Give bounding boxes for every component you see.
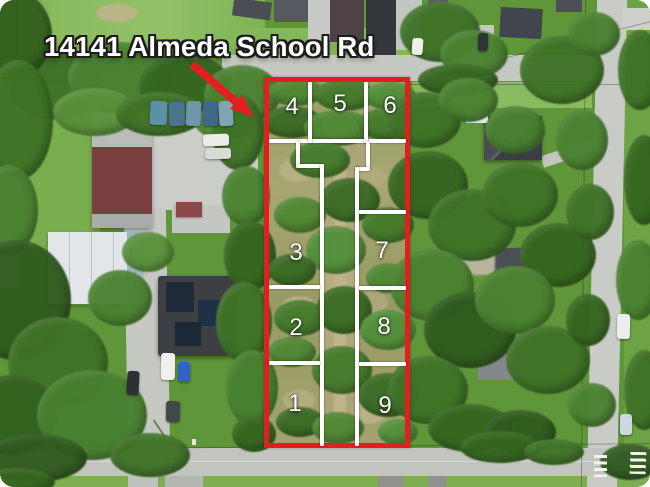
car xyxy=(617,314,630,339)
mailbox xyxy=(192,439,196,445)
tree-canopy xyxy=(438,78,498,122)
solar-panel xyxy=(166,282,194,312)
crosswalk-stripes xyxy=(630,452,647,475)
tree-canopy xyxy=(122,232,174,272)
car xyxy=(169,102,186,127)
car xyxy=(178,362,190,382)
lot-line xyxy=(366,141,370,170)
tree-canopy xyxy=(568,12,620,56)
driveway-apron xyxy=(165,476,203,487)
lot-line xyxy=(320,164,324,446)
car xyxy=(126,371,139,396)
driveway-apron xyxy=(428,476,446,487)
lot-line xyxy=(269,361,320,365)
lot-line xyxy=(269,285,320,289)
tree-canopy xyxy=(485,106,545,154)
lot-line xyxy=(359,286,406,290)
driveway-apron xyxy=(128,476,158,487)
driveway-apron xyxy=(378,476,404,487)
tree-canopy xyxy=(110,433,190,477)
shed-red-roof xyxy=(176,202,202,217)
tree-canopy xyxy=(566,294,610,346)
lot-number-4: 4 xyxy=(285,95,298,119)
lot-number-5: 5 xyxy=(333,92,346,116)
lot-line xyxy=(359,210,406,214)
solar-panel xyxy=(175,322,201,346)
crosswalk-stripes xyxy=(594,455,607,477)
tree-canopy xyxy=(616,240,650,320)
arrow-icon xyxy=(184,58,274,128)
car xyxy=(620,414,632,435)
car xyxy=(411,38,423,56)
lot-line xyxy=(269,139,406,143)
tree-canopy xyxy=(482,163,558,227)
car xyxy=(161,353,175,380)
lot-number-3: 3 xyxy=(289,241,302,265)
lot-number-1: 1 xyxy=(288,392,301,416)
car xyxy=(478,33,489,51)
car xyxy=(166,401,180,422)
tree-canopy xyxy=(222,166,270,226)
house-roof xyxy=(499,7,543,39)
dirt-patch xyxy=(96,4,138,22)
address-label: 14141 Almeda School Rd xyxy=(44,31,374,63)
tree-canopy xyxy=(475,266,555,334)
lot-line xyxy=(308,82,312,143)
lot-line xyxy=(359,362,406,366)
lot-number-8: 8 xyxy=(377,315,390,339)
lot-number-6: 6 xyxy=(383,94,396,118)
house-roof xyxy=(556,0,582,12)
car xyxy=(205,148,231,159)
tree-canopy xyxy=(556,110,608,170)
lot-number-7: 7 xyxy=(375,239,388,263)
car xyxy=(149,101,167,126)
lot-line xyxy=(298,164,322,168)
lot-number-2: 2 xyxy=(289,316,302,340)
lot-line xyxy=(364,82,368,143)
house-roof xyxy=(274,0,308,22)
tree-canopy xyxy=(568,383,616,427)
tree-canopy xyxy=(88,270,152,326)
tree-canopy xyxy=(524,439,584,465)
lot-number-9: 9 xyxy=(378,394,391,418)
lot-line xyxy=(355,167,359,446)
car xyxy=(203,134,229,147)
aerial-listing-photo: 4 5 6 3 7 2 8 1 9 14141 Almeda School Rd xyxy=(0,0,650,487)
tree-canopy xyxy=(566,184,614,240)
